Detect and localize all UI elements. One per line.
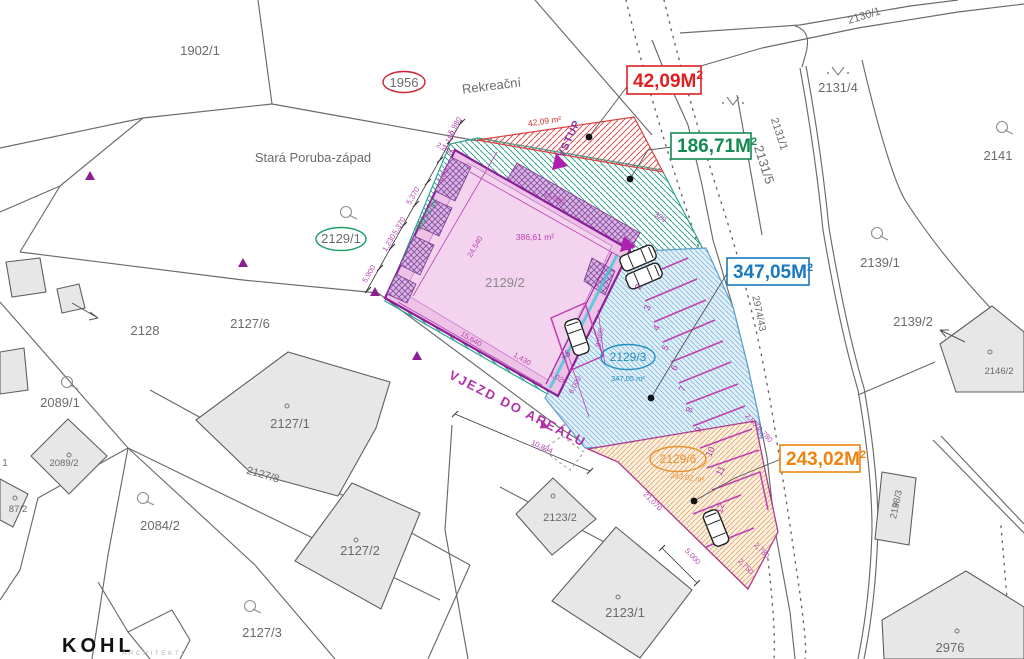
parcel-label: 2131/4 bbox=[818, 80, 858, 95]
svg-text:186,71M2: 186,71M2 bbox=[677, 136, 757, 157]
parcel-label: 2139/2 bbox=[893, 314, 933, 329]
leader-dot bbox=[691, 498, 698, 505]
svg-text:243,02M2: 243,02M2 bbox=[786, 449, 866, 470]
parking-area-label: 347,05 m² bbox=[611, 374, 645, 383]
site-plan-page: 1902/1 1956 Stará Poruba-západ Rekreační… bbox=[0, 0, 1024, 659]
parcel-label: 2084/2 bbox=[140, 518, 180, 533]
parcel-label: 1 bbox=[2, 458, 8, 469]
svg-text:42,09M2: 42,09M2 bbox=[633, 68, 703, 92]
site-plan-map: 1902/1 1956 Stará Poruba-západ Rekreační… bbox=[0, 0, 1024, 659]
svg-text:347,05M2: 347,05M2 bbox=[733, 262, 813, 283]
parcel-label: 2089/1 bbox=[40, 395, 80, 410]
parcel-label: 2123/1 bbox=[605, 605, 645, 620]
parcel-label: 1956 bbox=[390, 75, 419, 90]
parcel-label: 2127/6 bbox=[230, 316, 270, 331]
parcel-label: 2129/1 bbox=[321, 231, 361, 246]
leader-dot bbox=[648, 395, 655, 402]
legend-green-band: 186,71M2 bbox=[671, 133, 757, 159]
parcel-label: 2129/2 bbox=[485, 275, 525, 290]
legend-entrance: 42,09M2 bbox=[627, 66, 703, 94]
building-small-b bbox=[0, 348, 28, 394]
parcel-label: 2127/2 bbox=[340, 543, 380, 558]
leader-dot bbox=[586, 134, 593, 141]
legend-south: 243,02M2 bbox=[780, 445, 866, 472]
parcel-label: 2128 bbox=[131, 323, 160, 338]
building-area-label: 386,61 m² bbox=[516, 232, 554, 242]
logo-subtitle: ARCHITEKTI bbox=[122, 650, 186, 657]
parcel-label: 87/2 bbox=[9, 504, 28, 515]
parcel-label: 2089/2 bbox=[49, 458, 78, 469]
parcel-label: 2129/6 bbox=[660, 452, 697, 466]
parcel-label: 2139/1 bbox=[860, 255, 900, 270]
parcel-label: 2123/2 bbox=[543, 512, 577, 524]
parcel-label: 2146/2 bbox=[984, 366, 1013, 377]
parcel-label: 2141 bbox=[984, 148, 1013, 163]
parcel-label: 2129/3 bbox=[610, 350, 647, 364]
district-label: Stará Poruba-západ bbox=[255, 150, 371, 165]
parcel-label: 2127/3 bbox=[242, 625, 282, 640]
parcel-label: 2127/1 bbox=[270, 416, 310, 431]
parcel-label: 1902/1 bbox=[180, 43, 220, 58]
leader-dot bbox=[627, 176, 634, 183]
legend-parking: 347,05M2 bbox=[727, 258, 813, 285]
parcel-label: 2976 bbox=[936, 640, 965, 655]
building-small-a bbox=[6, 258, 46, 297]
